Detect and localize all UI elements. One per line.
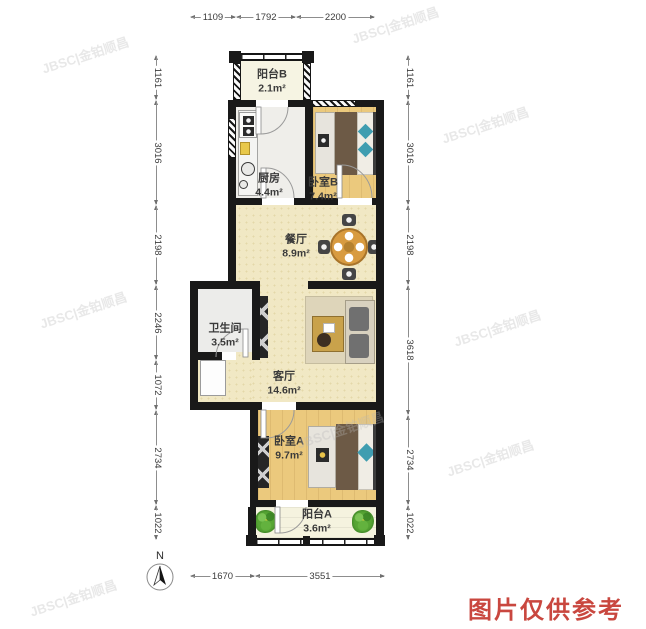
- room-area: 14.6m²: [267, 384, 300, 397]
- wall: [303, 536, 310, 546]
- wall: [229, 51, 241, 63]
- dim-label: 3618: [403, 337, 413, 362]
- dim-label: 3016: [403, 140, 413, 165]
- wall: [308, 500, 384, 507]
- dim-segment: 1161: [403, 55, 414, 100]
- coffee-table-tray: [323, 323, 335, 333]
- sofa: [345, 300, 375, 364]
- window-rail: [303, 63, 311, 100]
- dimension-line-top: 1109 1792 2200: [190, 12, 375, 23]
- room-name: 客厅: [267, 371, 300, 385]
- coffee-table: [312, 316, 344, 352]
- room-name: 阳台A: [302, 509, 332, 523]
- room-name: 阳台B: [257, 69, 287, 83]
- kitchen-pot: [239, 180, 248, 189]
- wall: [250, 402, 258, 507]
- label-dining: 餐厅 8.9m²: [282, 234, 309, 261]
- dining-chair: [318, 240, 330, 254]
- dimension-line-bottom: 1670 3551: [190, 571, 385, 582]
- dim-segment: 2198: [403, 205, 414, 285]
- wall: [190, 402, 258, 410]
- bedroom-a-bed-blanket: [336, 424, 358, 490]
- room-area: 9.7m²: [274, 449, 304, 462]
- hall-cabinet: [200, 360, 226, 396]
- window: [228, 118, 236, 158]
- dim-segment: 1022: [151, 505, 162, 540]
- dimension-line-right: 1161 3016 2198 3618 2734 1022: [403, 55, 414, 540]
- wall: [198, 352, 222, 360]
- room-name: 卧室B: [308, 177, 338, 191]
- window: [312, 100, 356, 107]
- watermark: JBSC|金铂顺昌: [451, 305, 543, 351]
- disclaimer-text: 图片仅供参考: [468, 590, 624, 625]
- room-area: 7.4m²: [308, 190, 338, 203]
- wall: [376, 100, 384, 545]
- wall: [190, 281, 198, 410]
- north-compass: [147, 564, 173, 590]
- dim-label: 2198: [151, 232, 161, 257]
- dim-label: 1161: [403, 65, 413, 89]
- dim-label: 2246: [151, 310, 161, 335]
- window-rail: [233, 63, 241, 100]
- bedroom-b-tv: [318, 134, 329, 147]
- label-balcony-a: 阳台A 3.6m²: [302, 509, 332, 536]
- kitchen-cutting-board: [240, 142, 250, 155]
- dim-label: 1072: [151, 372, 161, 397]
- room-name: 卧室A: [274, 436, 304, 450]
- wall: [252, 289, 260, 360]
- sink-basin: [243, 127, 254, 136]
- dim-segment: 1161: [151, 55, 162, 100]
- dim-label: 3551: [307, 571, 332, 581]
- room-area: 4.4m²: [255, 186, 282, 199]
- wall: [228, 100, 236, 118]
- label-bedroom-b: 卧室B 7.4m²: [308, 177, 338, 204]
- watermark: JBSC|金铂顺昌: [349, 2, 441, 48]
- bedroom-a-tv: [316, 448, 329, 462]
- dim-segment: 1022: [403, 505, 414, 540]
- dim-segment: 1072: [151, 360, 162, 410]
- watermark: JBSC|金铂顺昌: [39, 32, 131, 78]
- dim-label: 1109: [201, 12, 225, 22]
- wall: [246, 535, 257, 546]
- dim-label: 1022: [403, 510, 413, 535]
- dim-segment: 1109: [190, 12, 236, 23]
- floorplan-canvas: JBSC|金铂顺昌 JBSC|金铂顺昌 JBSC|金铂顺昌 JBSC|金铂顺昌 …: [0, 0, 646, 629]
- label-balcony-b: 阳台B 2.1m²: [257, 69, 287, 96]
- wall: [302, 51, 314, 63]
- bedroom-b-bed-blanket: [335, 112, 357, 175]
- watermark: JBSC|金铂顺昌: [444, 435, 536, 481]
- dim-label: 2198: [403, 232, 413, 257]
- dim-segment: 2246: [151, 285, 162, 360]
- dim-segment: 2198: [151, 205, 162, 285]
- north-label: N: [156, 550, 164, 562]
- dim-segment: 2734: [403, 415, 414, 505]
- window-glazing: [256, 538, 376, 546]
- dim-segment: 1670: [190, 571, 255, 582]
- dim-label: 1022: [151, 510, 161, 535]
- dim-label: 2734: [403, 447, 413, 472]
- dining-chair: [342, 214, 356, 226]
- watermark: JBSC|金铂顺昌: [27, 575, 119, 621]
- dim-segment: 1792: [236, 12, 296, 23]
- room-area: 2.1m²: [257, 82, 287, 95]
- window-glazing: [241, 53, 302, 61]
- dimension-line-left: 1161 3016 2198 2246 1072 2734 1022: [151, 55, 162, 540]
- dim-segment: 3618: [403, 285, 414, 415]
- wall: [250, 500, 276, 507]
- wall: [296, 402, 384, 410]
- dim-label: 1161: [151, 65, 161, 89]
- room-name: 餐厅: [282, 234, 309, 248]
- kitchen-sink: [239, 112, 257, 138]
- label-bedroom-a: 卧室A 9.7m²: [274, 436, 304, 463]
- room-name: 厨房: [255, 173, 282, 187]
- room-area: 3.6m²: [302, 522, 332, 535]
- dining-table: [330, 228, 368, 266]
- dim-segment: 2200: [296, 12, 375, 23]
- room-name: 卫生间: [209, 323, 242, 337]
- watermark: JBSC|金铂顺昌: [37, 287, 129, 333]
- dim-label: 1792: [253, 12, 278, 22]
- dim-segment: 3016: [403, 100, 414, 205]
- dim-label: 2734: [151, 445, 161, 470]
- sofa-cushion: [349, 334, 369, 358]
- dim-label: 1670: [210, 571, 235, 581]
- dim-segment: 3016: [151, 100, 162, 205]
- room-area: 3.5m²: [209, 336, 242, 349]
- dim-label: 2200: [323, 12, 348, 22]
- wall: [190, 281, 260, 289]
- dim-label: 3016: [151, 140, 161, 165]
- watermark: JBSC|金铂顺昌: [439, 102, 531, 148]
- sofa-cushion: [349, 307, 369, 331]
- dim-segment: 2734: [151, 410, 162, 505]
- room-area: 8.9m²: [282, 247, 309, 260]
- label-bathroom: 卫生间 3.5m²: [209, 323, 242, 350]
- wall: [308, 281, 376, 289]
- wall: [288, 100, 312, 107]
- sink-basin: [243, 116, 254, 125]
- dining-chair: [342, 268, 356, 280]
- coffee-table-bowl: [317, 333, 331, 347]
- wall: [228, 158, 236, 289]
- dim-segment: 3551: [255, 571, 385, 582]
- kitchen-stove: [241, 162, 255, 176]
- label-living: 客厅 14.6m²: [267, 371, 300, 398]
- label-kitchen: 厨房 4.4m²: [255, 173, 282, 200]
